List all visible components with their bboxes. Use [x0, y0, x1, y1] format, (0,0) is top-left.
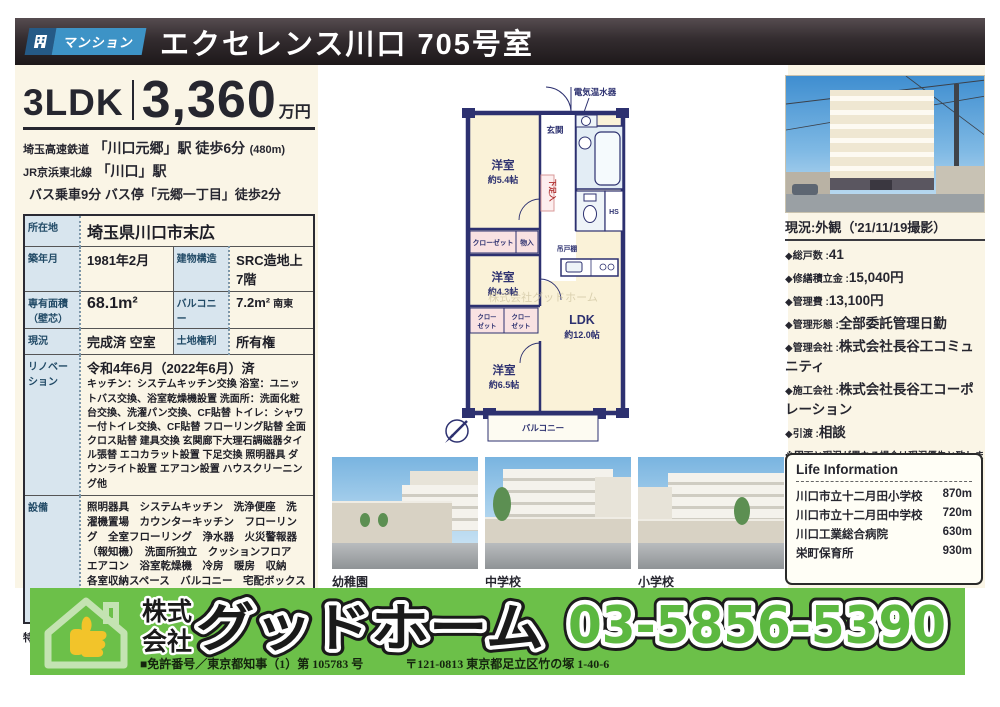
flyer-page: マンション エクセレンス川口 705号室 電気温水器 [0, 0, 1000, 707]
land-value: 所有権 [229, 329, 314, 355]
detail-total-units: ◆総戸数 :41 [785, 245, 985, 265]
closet3-label-l2: ゼット [512, 321, 531, 330]
entrance-label: 玄関 [546, 125, 563, 135]
footer-legal-line: ■免許番号／東京都知事（1）第 105783 号 〒121-0813 東京都足立… [140, 655, 609, 672]
location-label: 所在地 [24, 215, 80, 247]
balcony-label: バルコニー [522, 423, 564, 433]
room2-label: 洋室 [492, 270, 515, 284]
access-line-2: JR京浜東北線 「川口」駅 [23, 160, 315, 183]
junior-high-photo [485, 457, 631, 569]
agency-address: 〒121-0813 東京都足立区竹の塚 1-40-6 [405, 655, 609, 672]
kindergarten-photo [332, 457, 478, 569]
hs-label: HS [609, 209, 619, 216]
life-info-list: 川口市立十二月田小学校870m 川口市立十二月田中学校720m 川口工業総合病院… [796, 488, 972, 561]
company-prefix-2: 会社 [142, 627, 192, 656]
detail-mgmt-type: ◆管理形態 :全部委託管理日勤 [785, 314, 985, 334]
life-information-box: Life Information 川口市立十二月田小学校870m 川口市立十二月… [785, 453, 983, 585]
built-value: 1981年2月 [80, 247, 173, 292]
plan-watermark: 株式会社グッドホーム [488, 290, 598, 304]
exterior-caption: 現況:外観（'21/11/19撮影） [785, 213, 985, 241]
closet2-label-l1: クロー [478, 312, 497, 321]
cupboard-label: 吊戸棚 [557, 244, 578, 253]
location-value: 埼玉県川口市末広 [80, 215, 314, 247]
status-label: 現況 [24, 329, 80, 355]
table-row: 現況 完成済 空室 土地権利 所有権 [24, 329, 314, 355]
access-line-1: 埼玉高速鉄道 「川口元郷」駅 徒歩6分 (480m) [23, 137, 315, 160]
detail-handover: ◆引渡 :相談 [785, 423, 985, 443]
agency-logo-icon [40, 593, 132, 669]
detail-mgmt-fee: ◆管理費 :13,100円 [785, 291, 985, 311]
price-value: 3,360 [142, 77, 277, 124]
phone-text: 03-5856-5390 [568, 596, 946, 656]
left-column: 3LDK 3,360 万円 埼玉高速鉄道 「川口元郷」駅 徒歩6分 (480m)… [23, 77, 315, 645]
header-bar: マンション エクセレンス川口 705号室 [15, 18, 985, 65]
list-item: 川口市立十二月田小学校870m [796, 488, 972, 504]
status-value: 完成済 空室 [80, 329, 173, 355]
thumbs-up-icon [70, 617, 107, 657]
table-row: リノベーション 令和4年6月（2022年6月）済 キッチン：システムキッチン交換… [24, 355, 314, 496]
table-row: 所在地 埼玉県川口市末広 [24, 215, 314, 247]
ldk-label: LDK [569, 313, 595, 327]
agency-banner: 株式 会社 グッドホーム グッドホーム 03-5856-5390 03-5856… [30, 588, 965, 675]
ldk-size: 約12.0帖 [564, 329, 600, 340]
room3-label: 洋室 [493, 363, 516, 377]
room1-size: 約5.4帖 [488, 174, 519, 185]
renovation-label: リノベーション [24, 355, 80, 496]
land-label: 土地権利 [173, 329, 229, 355]
renovation-value: 令和4年6月（2022年6月）済 キッチン：システムキッチン交換 浴室：ユニット… [80, 355, 314, 496]
balcony-value: 7.2m²南東 [229, 292, 314, 329]
floor-plan: 電気温水器 [443, 81, 673, 453]
access-info: 埼玉高速鉄道 「川口元郷」駅 徒歩6分 (480m) JR京浜東北線 「川口」駅… [23, 137, 315, 207]
layout-type: 3LDK [23, 82, 124, 124]
price-divider [132, 80, 134, 120]
detail-builder: ◆施工会社 :株式会社長谷工コーポレーション [785, 380, 985, 420]
structure-label: 建物構造 [173, 247, 229, 292]
closet2-label-l2: ゼット [478, 321, 497, 330]
phone-number: 03-5856-5390 03-5856-5390 [558, 593, 956, 661]
middle-panel: 電気温水器 [318, 65, 788, 588]
list-item: 川口工業総合病院630m [796, 526, 972, 542]
property-type-badge: マンション [25, 28, 147, 55]
water-heater-label: 電気温水器 [574, 87, 617, 97]
storage-label: 物入 [520, 238, 534, 247]
access-line-3: バス乗車9分 バス停「元郷一丁目」徒歩2分 [23, 183, 315, 206]
property-details: ◆総戸数 :41 ◆修繕積立金 :15,040円 ◆管理費 :13,100円 ◆… [785, 245, 985, 443]
elementary-photo [638, 457, 784, 569]
photo-junior-high: 中学校 [485, 457, 631, 590]
closet-label: クローゼット [473, 238, 514, 247]
closet3-label-l1: クロー [512, 312, 531, 321]
right-column: 現況:外観（'21/11/19撮影） ◆総戸数 :41 ◆修繕積立金 :15,0… [785, 75, 985, 496]
shoe-box-label: 下足入 [548, 179, 557, 202]
built-label: 築年月 [24, 247, 80, 292]
detail-mgmt-company: ◆管理会社 :株式会社長谷工コミュニティ [785, 337, 985, 377]
room3-size: 約6.5帖 [489, 379, 520, 390]
page-title: エクセレンス川口 705号室 [160, 21, 534, 63]
exterior-photo [785, 75, 985, 213]
detail-repair-fund: ◆修繕積立金 :15,040円 [785, 268, 985, 288]
license-number: ■免許番号／東京都知事（1）第 105783 号 [140, 655, 363, 672]
compass-icon [445, 420, 468, 443]
life-info-title: Life Information [796, 462, 972, 482]
badge-label: マンション [52, 28, 147, 55]
table-row: 築年月 1981年2月 建物構造 SRC造地上7階 [24, 247, 314, 292]
company-prefix-1: 株式 [142, 598, 192, 626]
photo-strip: 幼稚園 中学校 [332, 457, 784, 590]
area-label: 専有面積（壁芯） [24, 292, 80, 329]
area-value: 68.1m² [80, 292, 173, 329]
room1-label: 洋室 [492, 158, 515, 172]
price-unit: 万円 [279, 98, 311, 122]
list-item: 栄町保育所930m [796, 545, 972, 561]
company-name: グッドホーム [196, 600, 544, 658]
photo-elementary: 小学校 [638, 457, 784, 590]
balcony-label: バルコニー [173, 292, 229, 329]
content-area: 電気温水器 [15, 65, 985, 588]
spec-table: 所在地 埼玉県川口市末広 築年月 1981年2月 建物構造 SRC造地上7階 専… [23, 214, 315, 624]
structure-value: SRC造地上7階 [229, 247, 314, 292]
table-row: 専有面積（壁芯） 68.1m² バルコニー 7.2m²南東 [24, 292, 314, 329]
price-block: 3LDK 3,360 万円 [23, 77, 315, 130]
list-item: 川口市立十二月田中学校720m [796, 507, 972, 523]
photo-kindergarten: 幼稚園 [332, 457, 478, 590]
